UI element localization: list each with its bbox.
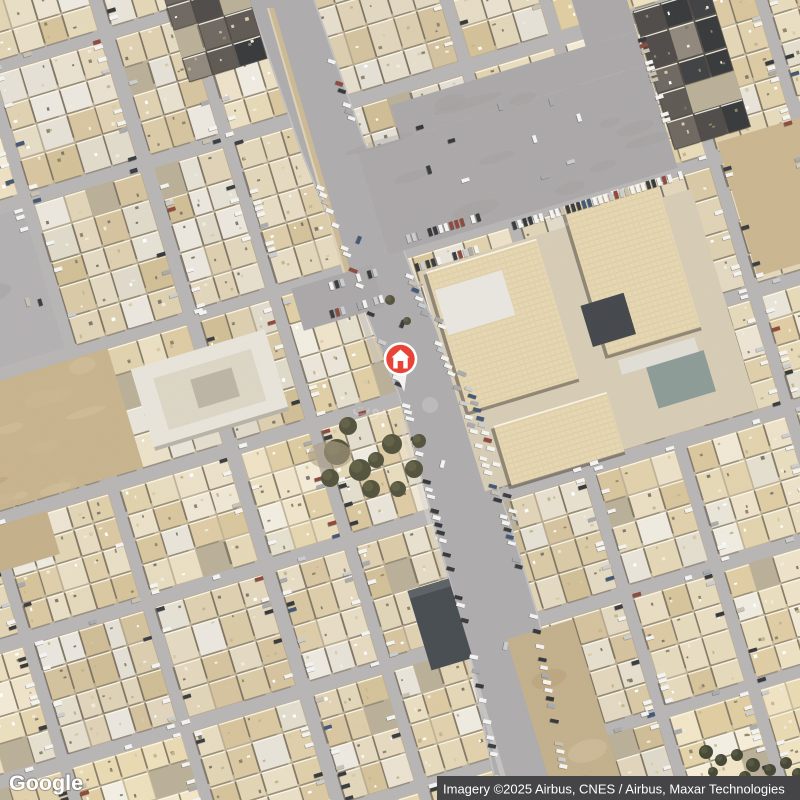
svg-text:Google: Google <box>9 771 83 795</box>
svg-text:Imagery ©2025 Airbus, CNES / A: Imagery ©2025 Airbus, CNES / Airbus, Max… <box>443 782 785 797</box>
